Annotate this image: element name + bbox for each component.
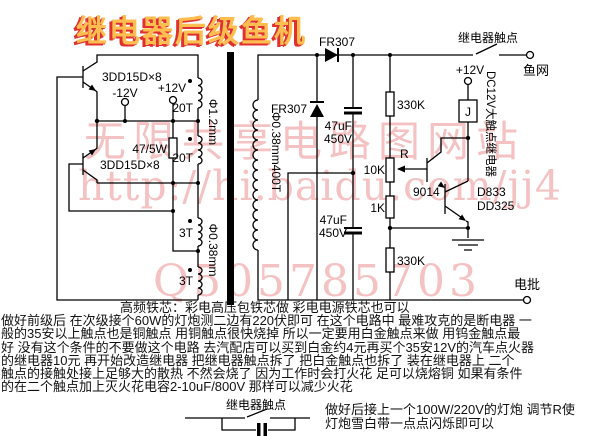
pos12v-label: +12V <box>158 81 186 95</box>
snubber-cap-plate-right <box>264 423 268 436</box>
neg12v-label: -12V <box>112 86 137 100</box>
q4-label-line1: D833 <box>477 185 506 199</box>
relay-coil-letter: J <box>465 105 471 119</box>
snubber-schematic <box>185 409 310 430</box>
secondary-winding <box>253 100 258 250</box>
diode-d1-symbol <box>325 48 338 62</box>
note-line: 般的35安以上触点也是铜触点 用铜触点很快烧掉 所以一定要用白金触点来做 用钨金… <box>1 327 534 340</box>
circuit-diagram-page: 无限共享电路图网站 http://hi.baidu.com/jj4 Q50578… <box>0 0 614 436</box>
primary-wire-gauge-label: Φ1.2mm <box>206 99 220 145</box>
cap-c2-value: 47uF <box>320 213 347 227</box>
relay-type-label: DC12V大触点继电器 <box>484 71 498 178</box>
feedback-wire-gauge-label: Φ0.38mm <box>206 224 220 277</box>
pot-10k-symbol <box>386 158 394 182</box>
note-line: 的在二个触点加上灭火花电容2-10uF/800V 那样可以减少火花 <box>1 380 534 393</box>
fishnet-terminal <box>527 52 534 59</box>
secondary-winding-label: Φ0.38mm400T <box>269 112 283 193</box>
resistor-330k-top-symbol <box>386 92 394 116</box>
q1-emitter-arrow-icon <box>89 85 96 92</box>
pot-name-label: R <box>400 147 409 161</box>
snubber-cap-plate-left <box>257 423 261 436</box>
q4-label-line2: DD325 <box>477 199 515 213</box>
pot-wiper-arrow-icon <box>397 166 405 173</box>
tip-line: 灯炮雪白带一点点闪烁即可以 <box>325 417 575 431</box>
diode-d1-label: FR307 <box>319 35 355 49</box>
snubber-contact-label: 继电器触点 <box>226 398 286 412</box>
q4-emitter-arrow-icon <box>459 215 466 222</box>
transformer-core <box>227 52 234 305</box>
resistor-330k-bottom-label: 330K <box>397 254 425 268</box>
winding-20t-2-label: 20T <box>172 151 193 165</box>
q2-label: 3DD15D×8 <box>100 158 160 172</box>
winding-3t-1-label: 3T <box>179 226 194 240</box>
relay-pos12v-terminal <box>465 78 472 85</box>
cap-c2-voltage: 450V <box>319 226 347 240</box>
tip-line: 做好后接上一个100W/220V的灯炮 调节R使 <box>325 403 575 417</box>
page-title: 继电器后级鱼机 <box>76 6 307 51</box>
q3-label: 9014 <box>413 185 440 199</box>
cap-c1-value: 47uF <box>325 119 352 133</box>
relay-pos12v-label: +12V <box>456 63 484 77</box>
bias-resistor-label: 47/5W <box>132 142 167 156</box>
pot-value-label: 10K <box>364 163 385 177</box>
resistor-330k-top-label: 330K <box>397 98 425 112</box>
diode-d2-label: FR307 <box>271 102 307 116</box>
note-line: 好 没有这个条件的不要做这个电路 去汽配店可以买到白金约4元再买个35安12V的… <box>1 341 534 354</box>
resistor-1k-label: 1K <box>370 201 385 215</box>
relay-contact-label: 继电器触点 <box>458 31 518 45</box>
fishnet-label: 鱼网 <box>523 63 549 78</box>
q1-label: 3DD15D×8 <box>102 70 162 84</box>
resistor-1k-symbol <box>386 196 394 218</box>
adjustment-tip: 做好后接上一个100W/220V的灯炮 调节R使 灯炮雪白带一点点闪烁即可以 <box>325 403 575 431</box>
q2-emitter-arrow-icon <box>89 149 96 156</box>
rod-label: 电批 <box>514 277 540 292</box>
resistor-330k-bottom-symbol <box>386 248 394 272</box>
cap-c1-symbol <box>344 108 362 113</box>
build-notes: 高频铁芯：彩电高压包铁芯做 彩电电源铁芯也可以 做好前级后 在次级接个60W的灯… <box>1 301 534 393</box>
diode-d2-symbol <box>310 102 324 117</box>
winding-20t-1-label: 20T <box>172 101 193 115</box>
cap-c1-voltage: 450V <box>324 132 352 146</box>
winding-3t-2-label: 3T <box>179 274 194 288</box>
